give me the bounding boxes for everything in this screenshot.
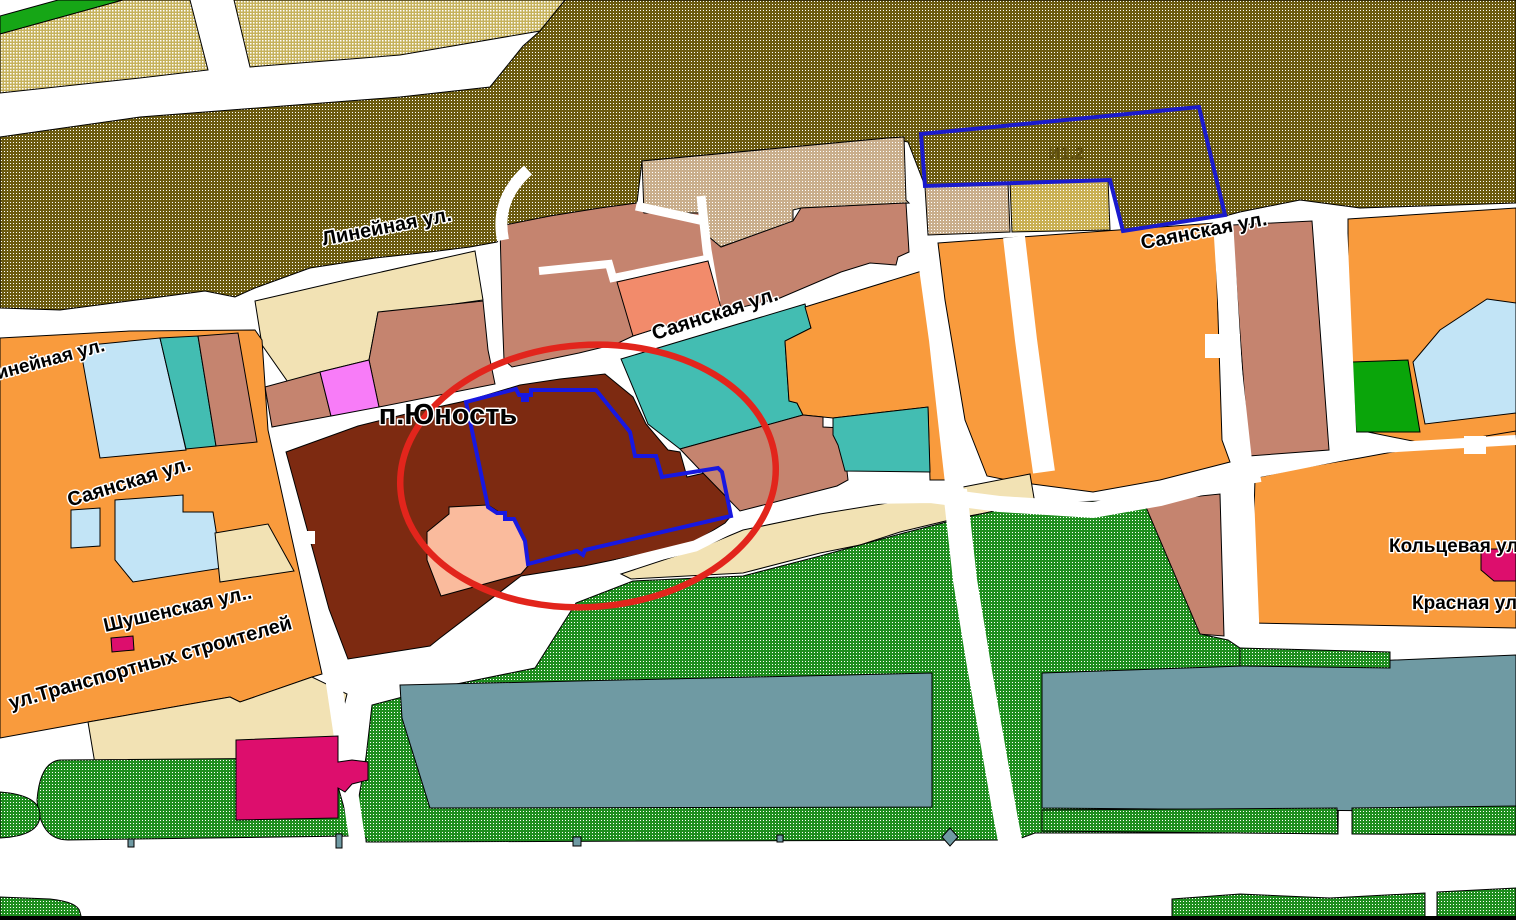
svg-text:Красная ул.: Красная ул. (1412, 593, 1516, 614)
svg-text:Кольцевая ул.: Кольцевая ул. (1389, 536, 1516, 557)
svg-text:И1.2: И1.2 (1048, 144, 1084, 163)
svg-text:п.Юность: п.Юность (379, 399, 518, 431)
